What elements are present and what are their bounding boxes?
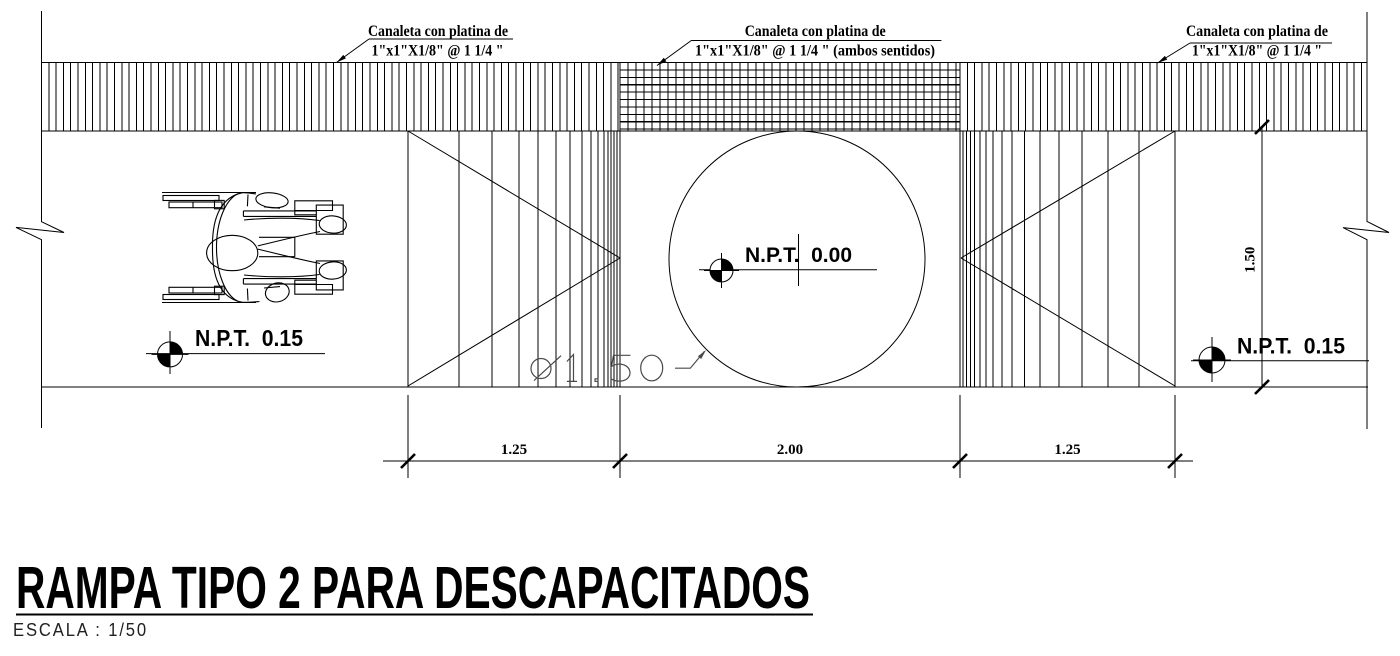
svg-text:N.P.T. 0.00: N.P.T. 0.00 — [745, 244, 852, 267]
svg-text:1"x1"X1/8" @ 1 1/4 " (ambos se: 1"x1"X1/8" @ 1 1/4 " (ambos sentidos) — [695, 43, 935, 60]
svg-text:1.25: 1.25 — [501, 442, 527, 458]
svg-text:Canaleta con platina de: Canaleta con platina de — [745, 23, 886, 40]
svg-text:2.00: 2.00 — [777, 442, 803, 458]
svg-text:Canaleta con platina de: Canaleta con platina de — [1186, 23, 1328, 40]
svg-text:1"x1"X1/8" @ 1 1/4 ": 1"x1"X1/8" @ 1 1/4 " — [1192, 43, 1322, 60]
svg-text:1"x1"X1/8" @ 1 1/4 ": 1"x1"X1/8" @ 1 1/4 " — [372, 43, 504, 60]
svg-text:N.P.T. 0.15: N.P.T. 0.15 — [195, 325, 303, 351]
svg-text:1.50: 1.50 — [1243, 247, 1259, 273]
svg-text:ESCALA : 1/50: ESCALA : 1/50 — [13, 620, 148, 640]
svg-text:RAMPA TIPO 2 PARA DESCAPACITAD: RAMPA TIPO 2 PARA DESCAPACITADOS — [16, 555, 810, 621]
svg-text:Canaleta con platina de: Canaleta con platina de — [368, 23, 508, 40]
svg-text:N.P.T. 0.15: N.P.T. 0.15 — [1237, 334, 1345, 359]
svg-text:1.25: 1.25 — [1054, 442, 1080, 458]
